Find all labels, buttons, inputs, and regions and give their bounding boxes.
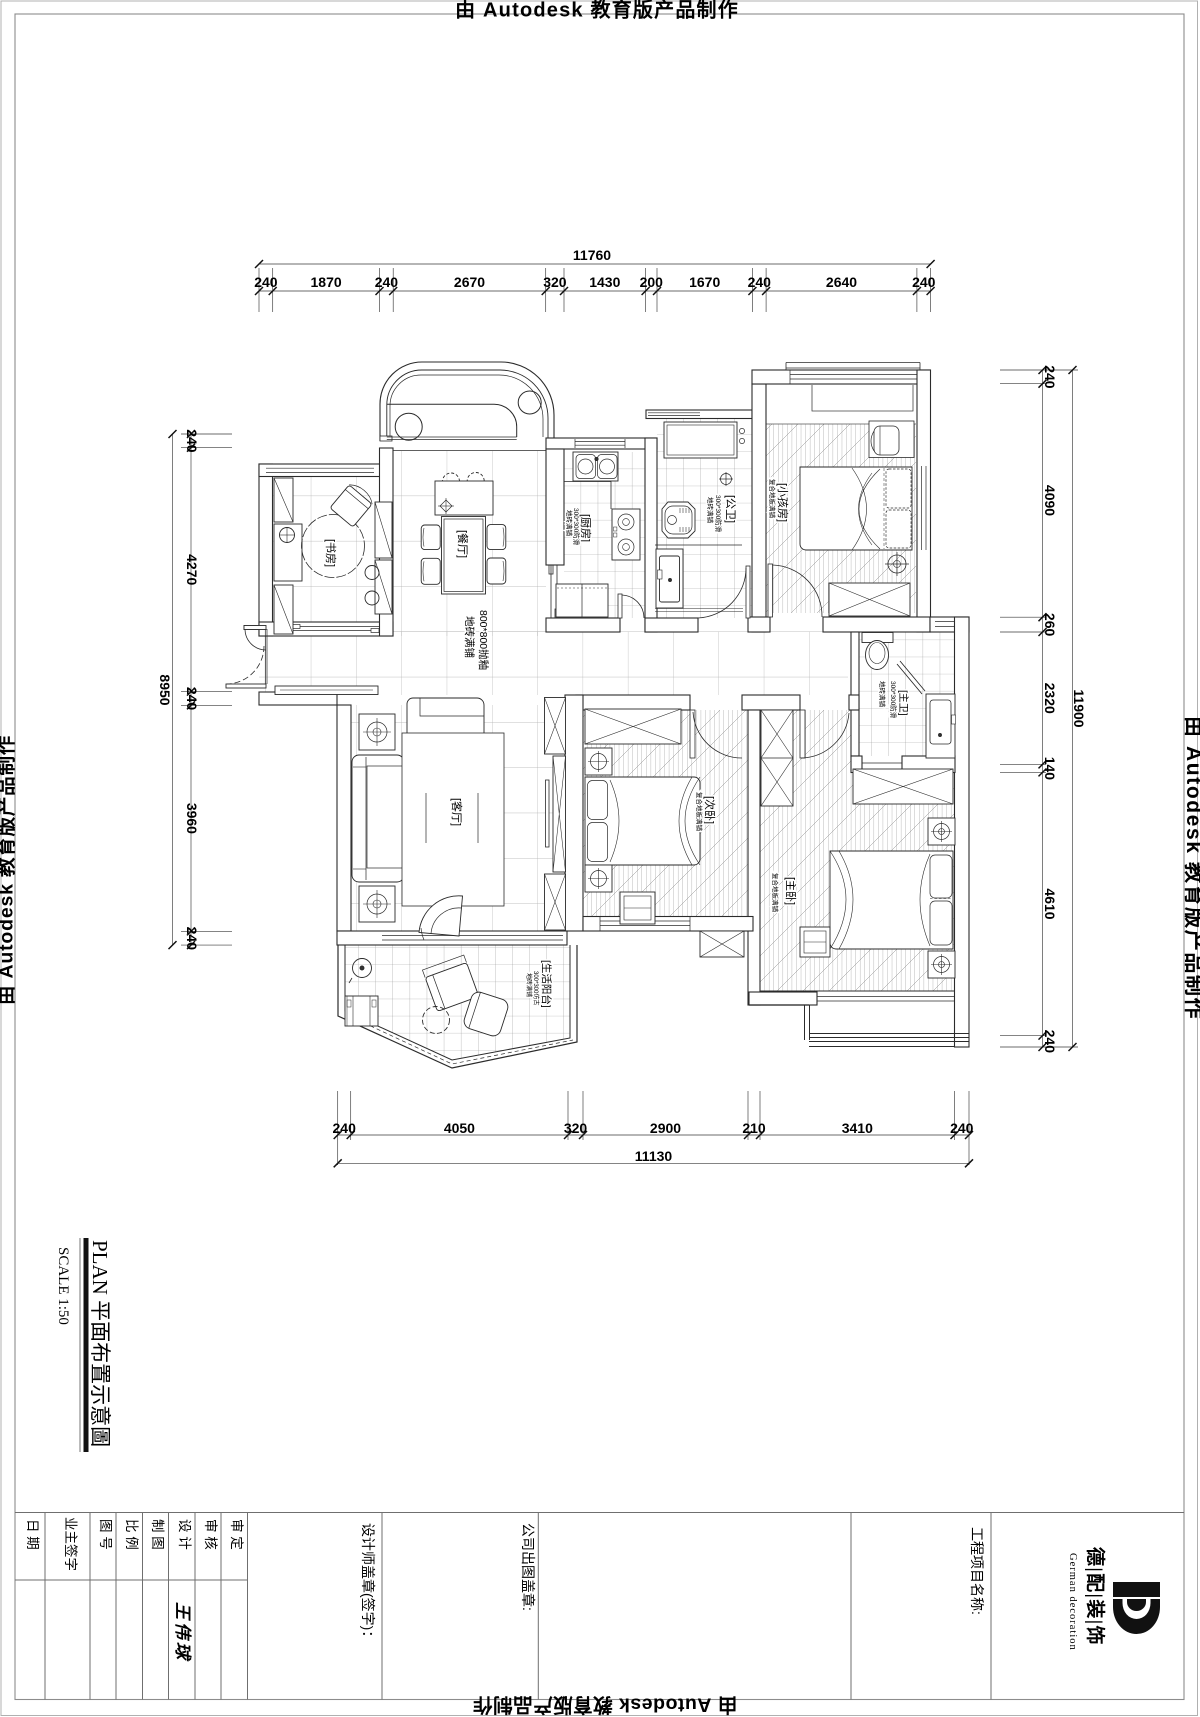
svg-text:11130: 11130 [635, 1148, 673, 1164]
svg-text:240: 240 [950, 1120, 974, 1136]
svg-text:320: 320 [564, 1120, 588, 1136]
svg-text:1870: 1870 [311, 274, 342, 290]
svg-text:复合地板满铺: 复合地板满铺 [768, 479, 777, 519]
svg-text:公司出图盖章:: 公司出图盖章: [520, 1523, 536, 1611]
svg-text:工程项目名称:: 工程项目名称: [969, 1527, 985, 1615]
svg-text:2900: 2900 [650, 1120, 681, 1136]
svg-text:240: 240 [912, 274, 936, 290]
svg-text:设计师盖章(签字)：: 设计师盖章(签字)： [360, 1523, 376, 1644]
svg-text:260: 260 [1042, 613, 1058, 637]
svg-text:240: 240 [254, 274, 278, 290]
svg-text:German decoration: German decoration [1067, 1553, 1078, 1651]
svg-text:300*300防滑: 300*300防滑 [572, 508, 581, 546]
svg-text:240: 240 [184, 927, 200, 951]
svg-text:4610: 4610 [1042, 888, 1058, 919]
svg-text:德|配|装|饰: 德|配|装|饰 [1084, 1547, 1107, 1646]
svg-text:[客厅]: [客厅] [450, 798, 464, 826]
svg-text:[次卧]: [次卧] [703, 796, 717, 824]
svg-text:2640: 2640 [826, 274, 857, 290]
svg-text:240: 240 [184, 429, 200, 453]
svg-text:地砖满铺: 地砖满铺 [565, 510, 574, 537]
svg-text:240: 240 [375, 274, 399, 290]
svg-text:3410: 3410 [842, 1120, 873, 1136]
svg-text:240: 240 [1042, 1030, 1058, 1054]
svg-text:比 例: 比 例 [124, 1519, 139, 1550]
svg-text:SCALE 1:50: SCALE 1:50 [55, 1247, 71, 1325]
svg-text:地砖满铺: 地砖满铺 [463, 616, 476, 658]
svg-text:[厨房]: [厨房] [579, 514, 592, 542]
svg-text:[生活阳台]: [生活阳台] [540, 960, 553, 1008]
svg-text:[主卫]: [主卫] [897, 690, 909, 716]
svg-text:240: 240 [1042, 365, 1058, 389]
svg-text:11900: 11900 [1071, 689, 1087, 727]
svg-text:240: 240 [333, 1120, 357, 1136]
svg-text:4090: 4090 [1042, 485, 1058, 516]
svg-text:PLAN 平面布置示意圖: PLAN 平面布置示意圖 [88, 1240, 112, 1447]
svg-text:图 号: 图 号 [98, 1519, 113, 1550]
svg-text:[公卫]: [公卫] [724, 495, 736, 523]
svg-text:3960: 3960 [184, 803, 200, 834]
svg-text:由 Autodesk 教育版产品制作: 由 Autodesk 教育版产品制作 [455, 0, 739, 22]
svg-text:140: 140 [1042, 757, 1058, 781]
svg-text:审 定: 审 定 [229, 1519, 244, 1550]
svg-text:210: 210 [742, 1120, 766, 1136]
svg-text:由 Autodesk 教育版产品制作: 由 Autodesk 教育版产品制作 [473, 1694, 738, 1717]
svg-text:300*300防滑: 300*300防滑 [714, 495, 723, 533]
svg-text:200: 200 [640, 274, 664, 290]
svg-text:2320: 2320 [1042, 683, 1058, 714]
svg-text:[餐厅]: [餐厅] [456, 530, 470, 558]
svg-text:[主卧]: [主卧] [784, 877, 797, 905]
svg-text:复合地板满铺: 复合地板满铺 [695, 792, 704, 832]
svg-text:240: 240 [184, 687, 200, 711]
svg-text:制 图: 制 图 [150, 1519, 165, 1550]
svg-text:审 核: 审 核 [203, 1519, 218, 1550]
svg-text:[小孩房]: [小孩房] [776, 483, 789, 522]
svg-text:设 计: 设 计 [177, 1519, 192, 1550]
svg-text:1670: 1670 [689, 274, 720, 290]
svg-text:11760: 11760 [573, 247, 611, 263]
svg-text:320: 320 [543, 274, 567, 290]
svg-text:由 Autodesk 教育版产品制作: 由 Autodesk 教育版产品制作 [1182, 716, 1200, 1020]
svg-text:王伟球: 王伟球 [173, 1602, 192, 1662]
svg-text:300*300防滑: 300*300防滑 [889, 681, 898, 719]
svg-text:4050: 4050 [444, 1120, 475, 1136]
svg-text:地砖满铺: 地砖满铺 [525, 973, 533, 997]
svg-text:8950: 8950 [157, 674, 173, 705]
svg-text:240: 240 [748, 274, 772, 290]
svg-text:4270: 4270 [184, 554, 200, 585]
svg-text:300*300仿古: 300*300仿古 [532, 971, 540, 1005]
svg-text:1430: 1430 [589, 274, 620, 290]
svg-text:地砖满铺: 地砖满铺 [706, 497, 715, 524]
svg-text:由 Autodesk 教育版产品制作: 由 Autodesk 教育版产品制作 [0, 735, 18, 1005]
svg-text:2670: 2670 [454, 274, 485, 290]
svg-text:业主签字: 业主签字 [63, 1517, 79, 1571]
svg-text:地砖满铺: 地砖满铺 [878, 681, 887, 708]
svg-text:[书房]: [书房] [324, 539, 337, 567]
svg-text:日 期: 日 期 [25, 1519, 40, 1550]
svg-text:800*800抛釉: 800*800抛釉 [477, 610, 490, 670]
svg-text:复合地板满铺: 复合地板满铺 [771, 873, 780, 913]
